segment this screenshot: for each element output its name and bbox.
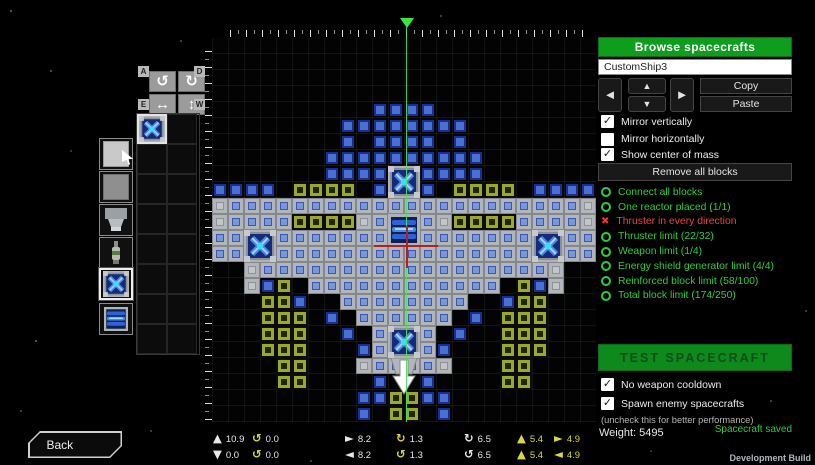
- ship-block-hull[interactable]: [548, 214, 564, 230]
- ship-block-hull[interactable]: [276, 214, 292, 230]
- palette-tool-heavy-armor-block[interactable]: [99, 171, 133, 203]
- ship-block-reinforced[interactable]: [276, 278, 292, 294]
- ship-block-basic[interactable]: [420, 390, 436, 406]
- ship-block-hull[interactable]: [468, 246, 484, 262]
- block-slot[interactable]: [167, 294, 197, 324]
- back-button[interactable]: Back: [28, 431, 122, 458]
- ship-block-reinforced[interactable]: [292, 214, 308, 230]
- test-option-checkbox[interactable]: ✓: [601, 378, 614, 391]
- ship-block-hull[interactable]: [420, 262, 436, 278]
- ship-block-hull[interactable]: [324, 230, 340, 246]
- paste-button[interactable]: Paste: [700, 96, 792, 112]
- ship-block-armor[interactable]: [356, 214, 372, 230]
- ship-block-hull[interactable]: [372, 358, 388, 374]
- shield-generator-block[interactable]: [388, 326, 420, 358]
- ship-block-reinforced[interactable]: [500, 182, 516, 198]
- ship-block-hull[interactable]: [436, 278, 452, 294]
- ship-block-reinforced[interactable]: [500, 326, 516, 342]
- ship-block-reinforced[interactable]: [276, 326, 292, 342]
- ship-block-hull[interactable]: [324, 246, 340, 262]
- ship-block-basic[interactable]: [324, 166, 340, 182]
- ship-block-reinforced[interactable]: [516, 374, 532, 390]
- ship-block-hull[interactable]: [228, 198, 244, 214]
- block-slot[interactable]: [167, 144, 197, 174]
- ship-block-hull[interactable]: [356, 198, 372, 214]
- ship-block-hull[interactable]: [340, 294, 356, 310]
- block-slot[interactable]: [137, 234, 167, 264]
- ship-block-reinforced[interactable]: [500, 214, 516, 230]
- ship-block-hull[interactable]: [388, 198, 404, 214]
- ship-block-armor[interactable]: [548, 278, 564, 294]
- ship-block-basic[interactable]: [388, 134, 404, 150]
- block-slot[interactable]: [137, 204, 167, 234]
- ship-block-hull[interactable]: [484, 230, 500, 246]
- ship-block-basic[interactable]: [372, 390, 388, 406]
- ship-name-input[interactable]: [598, 59, 792, 75]
- ship-block-armor[interactable]: [212, 214, 228, 230]
- ship-block-hull[interactable]: [340, 246, 356, 262]
- ship-block-basic[interactable]: [388, 150, 404, 166]
- palette-tool-thruster-block[interactable]: [99, 204, 133, 236]
- ship-block-basic[interactable]: [372, 166, 388, 182]
- ship-block-hull[interactable]: [388, 246, 404, 262]
- ship-block-reinforced[interactable]: [516, 358, 532, 374]
- ship-block-hull[interactable]: [484, 198, 500, 214]
- ship-block-armor[interactable]: [580, 214, 596, 230]
- ship-block-hull[interactable]: [308, 198, 324, 214]
- ship-block-reinforced[interactable]: [484, 182, 500, 198]
- ship-block-reinforced[interactable]: [308, 182, 324, 198]
- next-ship-button[interactable]: ►: [670, 78, 694, 112]
- ship-block-hull[interactable]: [420, 342, 436, 358]
- ship-block-hull[interactable]: [372, 278, 388, 294]
- ship-block-hull[interactable]: [372, 294, 388, 310]
- ship-block-hull[interactable]: [484, 278, 500, 294]
- ship-block-basic[interactable]: [452, 118, 468, 134]
- ship-block-basic[interactable]: [452, 134, 468, 150]
- ship-block-hull[interactable]: [500, 230, 516, 246]
- palette-tool-reactor-block[interactable]: [99, 303, 133, 335]
- flip-horizontal-button[interactable]: ↔: [149, 94, 176, 115]
- ship-block-basic[interactable]: [244, 182, 260, 198]
- ship-block-hull[interactable]: [228, 214, 244, 230]
- ship-block-basic[interactable]: [436, 166, 452, 182]
- ship-block-reinforced[interactable]: [260, 294, 276, 310]
- ship-block-basic[interactable]: [436, 390, 452, 406]
- ship-block-hull[interactable]: [260, 198, 276, 214]
- ship-block-basic[interactable]: [212, 182, 228, 198]
- ship-block-hull[interactable]: [452, 246, 468, 262]
- ship-block-basic[interactable]: [500, 294, 516, 310]
- ship-block-basic[interactable]: [548, 182, 564, 198]
- ship-block-hull[interactable]: [564, 246, 580, 262]
- ship-block-reinforced[interactable]: [308, 214, 324, 230]
- ship-block-hull[interactable]: [580, 230, 596, 246]
- vertical-ruler: [205, 44, 212, 420]
- block-slot[interactable]: [137, 324, 167, 354]
- ship-block-hull[interactable]: [452, 198, 468, 214]
- ship-block-basic[interactable]: [292, 294, 308, 310]
- ship-block-hull[interactable]: [532, 198, 548, 214]
- ship-block-basic[interactable]: [468, 310, 484, 326]
- test-option-checkbox[interactable]: ✓: [601, 397, 614, 410]
- ship-block-reinforced[interactable]: [292, 310, 308, 326]
- block-slot[interactable]: [137, 294, 167, 324]
- ship-block-hull[interactable]: [340, 230, 356, 246]
- ship-block-hull[interactable]: [340, 198, 356, 214]
- ship-block-hull[interactable]: [580, 246, 596, 262]
- ship-block-hull[interactable]: [292, 262, 308, 278]
- ship-block-basic[interactable]: [532, 182, 548, 198]
- block-slot[interactable]: [167, 204, 197, 234]
- ship-block-basic[interactable]: [436, 118, 452, 134]
- ship-block-hull[interactable]: [484, 246, 500, 262]
- block-slot-shield-generator[interactable]: [137, 114, 167, 144]
- ship-block-hull[interactable]: [420, 214, 436, 230]
- ship-block-basic[interactable]: [388, 102, 404, 118]
- ship-block-hull[interactable]: [244, 198, 260, 214]
- ship-block-hull[interactable]: [308, 262, 324, 278]
- ship-block-hull[interactable]: [372, 246, 388, 262]
- ship-block-hull[interactable]: [388, 294, 404, 310]
- weight-readout: Weight: 5495: [599, 427, 664, 439]
- ship-block-armor[interactable]: [580, 198, 596, 214]
- ship-block-basic[interactable]: [356, 342, 372, 358]
- ship-block-reinforced[interactable]: [452, 214, 468, 230]
- block-slot[interactable]: [137, 174, 167, 204]
- ship-block-hull[interactable]: [212, 246, 228, 262]
- ship-block-basic[interactable]: [324, 310, 340, 326]
- ship-block-basic[interactable]: [436, 342, 452, 358]
- ship-block-hull[interactable]: [260, 214, 276, 230]
- ship-block-basic[interactable]: [388, 118, 404, 134]
- ship-block-hull[interactable]: [516, 214, 532, 230]
- ship-block-hull[interactable]: [548, 198, 564, 214]
- ship-block-hull[interactable]: [468, 230, 484, 246]
- ship-block-basic[interactable]: [452, 166, 468, 182]
- ship-block-hull[interactable]: [388, 278, 404, 294]
- ship-list-down-button[interactable]: ▼: [628, 96, 666, 112]
- block-slot[interactable]: [137, 264, 167, 294]
- ship-block-reinforced[interactable]: [276, 358, 292, 374]
- ship-block-reinforced[interactable]: [276, 294, 292, 310]
- ship-block-basic[interactable]: [356, 406, 372, 422]
- ship-block-hull[interactable]: [452, 278, 468, 294]
- ship-block-hull[interactable]: [564, 214, 580, 230]
- ship-block-reinforced[interactable]: [388, 406, 404, 422]
- ship-block-basic[interactable]: [356, 390, 372, 406]
- stat-value: 5.4: [530, 450, 543, 461]
- ship-block-reinforced[interactable]: [276, 310, 292, 326]
- ship-block-hull[interactable]: [324, 198, 340, 214]
- ship-block-hull[interactable]: [372, 198, 388, 214]
- ship-block-basic[interactable]: [372, 374, 388, 390]
- ship-block-reinforced[interactable]: [516, 278, 532, 294]
- ship-block-hull[interactable]: [436, 310, 452, 326]
- block-slot[interactable]: [167, 114, 197, 144]
- block-slot[interactable]: [137, 144, 167, 174]
- arrow-right-icon: ►: [676, 87, 689, 102]
- block-slot[interactable]: [167, 324, 197, 354]
- ship-block-hull[interactable]: [532, 262, 548, 278]
- requirement-item: One reactor placed (1/1): [601, 200, 793, 215]
- main-thruster-block[interactable]: [388, 358, 420, 390]
- ship-block-hull[interactable]: [356, 310, 372, 326]
- ship-block-hull[interactable]: [388, 262, 404, 278]
- ship-block-hull[interactable]: [420, 294, 436, 310]
- mirror-option-checkbox[interactable]: [601, 133, 614, 146]
- ship-block-hull[interactable]: [212, 230, 228, 246]
- shield-generator-block[interactable]: [244, 230, 276, 262]
- ship-block-hull[interactable]: [356, 230, 372, 246]
- ship-block-hull[interactable]: [500, 198, 516, 214]
- ship-block-reinforced[interactable]: [260, 310, 276, 326]
- ship-block-hull[interactable]: [436, 198, 452, 214]
- ship-block-reinforced[interactable]: [292, 326, 308, 342]
- ship-block-hull[interactable]: [468, 262, 484, 278]
- ship-block-hull[interactable]: [356, 262, 372, 278]
- ship-block-hull[interactable]: [516, 246, 532, 262]
- ship-block-hull[interactable]: [468, 198, 484, 214]
- ship-block-hull[interactable]: [372, 326, 388, 342]
- ship-block-hull[interactable]: [420, 358, 436, 374]
- rotate-ccw-button[interactable]: ↺: [149, 71, 176, 92]
- palette-tool-light-armor-block[interactable]: [99, 138, 133, 170]
- ship-block-hull[interactable]: [516, 198, 532, 214]
- center-marker-icon: [400, 18, 414, 28]
- ship-block-hull[interactable]: [228, 230, 244, 246]
- ship-block-reinforced[interactable]: [468, 182, 484, 198]
- shield-generator-block[interactable]: [388, 166, 420, 198]
- ship-block-hull[interactable]: [276, 246, 292, 262]
- ship-block-basic[interactable]: [420, 166, 436, 182]
- ship-block-basic[interactable]: [564, 182, 580, 198]
- browse-spacecrafts-button[interactable]: Browse spacecrafts: [598, 37, 792, 57]
- ship-block-reinforced[interactable]: [276, 374, 292, 390]
- ship-block-basic[interactable]: [340, 326, 356, 342]
- ship-block-basic[interactable]: [420, 118, 436, 134]
- ship-block-basic[interactable]: [372, 182, 388, 198]
- build-grid[interactable]: [212, 38, 596, 422]
- ship-block-basic[interactable]: [420, 150, 436, 166]
- ship-block-hull[interactable]: [420, 230, 436, 246]
- ship-block-hull[interactable]: [452, 230, 468, 246]
- ship-block-basic[interactable]: [420, 374, 436, 390]
- ship-block-hull[interactable]: [484, 262, 500, 278]
- ship-block-reinforced[interactable]: [292, 182, 308, 198]
- ship-block-reinforced[interactable]: [292, 342, 308, 358]
- ship-block-reinforced[interactable]: [532, 294, 548, 310]
- ship-block-hull[interactable]: [372, 310, 388, 326]
- ship-block-basic[interactable]: [260, 278, 276, 294]
- ship-block-hull[interactable]: [564, 230, 580, 246]
- ship-block-reinforced[interactable]: [292, 358, 308, 374]
- stat-rotate-ccw: ↺0.0: [252, 447, 279, 461]
- test-option-row: ✓Spawn enemy spacecrafts: [601, 397, 744, 410]
- ship-block-hull[interactable]: [420, 310, 436, 326]
- ship-block-reinforced[interactable]: [260, 326, 276, 342]
- ship-block-hull[interactable]: [340, 278, 356, 294]
- ship-block-hull[interactable]: [228, 246, 244, 262]
- ship-block-hull[interactable]: [276, 262, 292, 278]
- ship-block-hull[interactable]: [308, 246, 324, 262]
- mirror-option-label: Mirror horizontally: [621, 133, 704, 145]
- ship-block-basic[interactable]: [340, 150, 356, 166]
- stat-value: 0.0: [226, 450, 239, 461]
- ship-block-armor[interactable]: [244, 262, 260, 278]
- ship-block-basic[interactable]: [372, 118, 388, 134]
- ship-block-reinforced[interactable]: [340, 214, 356, 230]
- ship-block-reinforced[interactable]: [500, 310, 516, 326]
- requirement-ok-icon: [601, 291, 611, 301]
- ship-block-basic[interactable]: [356, 118, 372, 134]
- ship-block-hull[interactable]: [516, 230, 532, 246]
- ship-block-basic[interactable]: [372, 102, 388, 118]
- ship-block-hull[interactable]: [276, 230, 292, 246]
- ship-block-armor[interactable]: [244, 278, 260, 294]
- ship-block-reinforced[interactable]: [516, 294, 532, 310]
- ship-block-hull[interactable]: [356, 294, 372, 310]
- ship-list-up-button[interactable]: ▲: [628, 78, 666, 94]
- remove-all-blocks-button[interactable]: Remove all blocks: [598, 163, 792, 181]
- block-slot[interactable]: [167, 264, 197, 294]
- ship-block-reinforced[interactable]: [500, 358, 516, 374]
- ship-block-hull[interactable]: [388, 310, 404, 326]
- ship-block-hull[interactable]: [436, 294, 452, 310]
- ship-block-reinforced[interactable]: [532, 326, 548, 342]
- ship-block-hull[interactable]: [420, 326, 436, 342]
- ship-block-hull[interactable]: [292, 230, 308, 246]
- ship-block-basic[interactable]: [372, 150, 388, 166]
- ship-block-reinforced[interactable]: [532, 310, 548, 326]
- ship-block-basic[interactable]: [324, 150, 340, 166]
- ship-block-basic[interactable]: [420, 102, 436, 118]
- ship-block-basic[interactable]: [228, 182, 244, 198]
- ship-block-hull[interactable]: [452, 294, 468, 310]
- ship-block-hull[interactable]: [308, 278, 324, 294]
- ship-block-reinforced[interactable]: [500, 342, 516, 358]
- ship-block-hull[interactable]: [532, 214, 548, 230]
- block-slot[interactable]: [167, 234, 197, 264]
- ship-block-reinforced[interactable]: [500, 374, 516, 390]
- ship-block-basic[interactable]: [340, 118, 356, 134]
- stat-arrow-right: ►4.9: [554, 431, 580, 445]
- ship-block-basic[interactable]: [340, 134, 356, 150]
- ship-block-reinforced[interactable]: [452, 182, 468, 198]
- ship-block-hull[interactable]: [356, 278, 372, 294]
- ship-block-hull[interactable]: [324, 262, 340, 278]
- reactor-block[interactable]: [388, 214, 420, 246]
- ship-block-hull[interactable]: [292, 198, 308, 214]
- ship-block-hull[interactable]: [324, 278, 340, 294]
- mirror-option-checkbox[interactable]: ✓: [601, 115, 614, 128]
- ship-block-hull[interactable]: [420, 246, 436, 262]
- ship-block-armor[interactable]: [436, 358, 452, 374]
- arrow-left-icon: ◄: [604, 87, 617, 102]
- ship-block-armor[interactable]: [436, 214, 452, 230]
- ship-block-basic[interactable]: [452, 326, 468, 342]
- ship-block-hull[interactable]: [372, 230, 388, 246]
- ship-block-hull[interactable]: [260, 262, 276, 278]
- ship-block-reinforced[interactable]: [276, 342, 292, 358]
- ship-block-reinforced[interactable]: [324, 214, 340, 230]
- ship-block-basic[interactable]: [468, 166, 484, 182]
- ship-block-armor[interactable]: [356, 358, 372, 374]
- palette-tool-weapon-block[interactable]: [99, 237, 133, 269]
- ship-block-hull[interactable]: [340, 262, 356, 278]
- ship-block-reinforced[interactable]: [292, 374, 308, 390]
- ship-block-basic[interactable]: [468, 150, 484, 166]
- previous-ship-button[interactable]: ◄: [598, 78, 622, 112]
- ship-block-hull[interactable]: [500, 246, 516, 262]
- palette-tool-shield-generator-block[interactable]: [99, 268, 133, 300]
- ship-block-basic[interactable]: [436, 406, 452, 422]
- ship-block-reinforced[interactable]: [516, 310, 532, 326]
- stat-value: 4.9: [567, 450, 580, 461]
- ship-block-reinforced[interactable]: [484, 214, 500, 230]
- ship-block-armor[interactable]: [212, 198, 228, 214]
- ship-block-basic[interactable]: [356, 166, 372, 182]
- ship-block-hull[interactable]: [436, 246, 452, 262]
- ship-block-hull[interactable]: [564, 198, 580, 214]
- shield-generator-block[interactable]: [532, 230, 564, 262]
- ship-block-hull[interactable]: [452, 262, 468, 278]
- ship-block-hull[interactable]: [372, 262, 388, 278]
- ship-block-basic[interactable]: [340, 166, 356, 182]
- ship-block-hull[interactable]: [276, 198, 292, 214]
- ship-block-hull[interactable]: [420, 278, 436, 294]
- ship-block-hull[interactable]: [244, 214, 260, 230]
- ship-block-reinforced[interactable]: [260, 342, 276, 358]
- ship-block-basic[interactable]: [356, 150, 372, 166]
- ship-block-hull[interactable]: [420, 198, 436, 214]
- ship-block-reinforced[interactable]: [340, 182, 356, 198]
- ship-block-hull[interactable]: [436, 262, 452, 278]
- ship-block-hull[interactable]: [372, 342, 388, 358]
- back-button-label: Back: [47, 438, 74, 452]
- ship-block-reinforced[interactable]: [516, 326, 532, 342]
- test-spacecraft-button[interactable]: TEST SPACECRAFT: [598, 344, 792, 371]
- ship-block-hull[interactable]: [356, 246, 372, 262]
- ship-block-basic[interactable]: [372, 134, 388, 150]
- rotate-ccw-icon: ↺: [252, 447, 262, 461]
- block-slot[interactable]: [167, 174, 197, 204]
- ship-block-basic[interactable]: [260, 182, 276, 198]
- ship-block-armor[interactable]: [548, 262, 564, 278]
- ship-block-reinforced[interactable]: [324, 182, 340, 198]
- requirement-ok-icon: [601, 261, 611, 271]
- ship-block-hull[interactable]: [292, 246, 308, 262]
- ship-block-basic[interactable]: [580, 182, 596, 198]
- copy-button[interactable]: Copy: [700, 78, 792, 94]
- ship-block-reinforced[interactable]: [532, 342, 548, 358]
- mirror-option-checkbox[interactable]: ✓: [601, 148, 614, 161]
- ship-block-hull[interactable]: [308, 230, 324, 246]
- ship-block-basic[interactable]: [420, 182, 436, 198]
- ship-block-hull[interactable]: [436, 230, 452, 246]
- ship-block-reinforced[interactable]: [468, 214, 484, 230]
- ship-block-basic[interactable]: [420, 134, 436, 150]
- ship-block-hull[interactable]: [500, 262, 516, 278]
- ship-block-hull[interactable]: [516, 262, 532, 278]
- ship-block-reinforced[interactable]: [516, 342, 532, 358]
- ship-block-basic[interactable]: [436, 150, 452, 166]
- ship-block-basic[interactable]: [532, 278, 548, 294]
- ship-block-basic[interactable]: [452, 150, 468, 166]
- ship-block-hull[interactable]: [468, 278, 484, 294]
- arrow-up-icon: ▲: [517, 447, 526, 461]
- ship-block-hull[interactable]: [372, 214, 388, 230]
